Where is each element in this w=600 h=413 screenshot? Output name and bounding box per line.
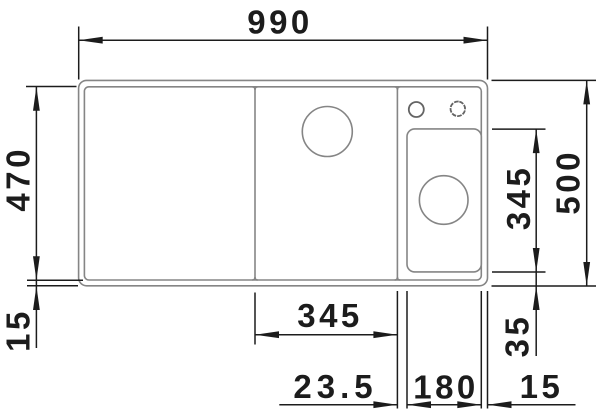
svg-text:470: 470 <box>0 146 37 212</box>
svg-text:990: 990 <box>247 4 313 41</box>
svg-text:500: 500 <box>550 149 587 215</box>
svg-text:15: 15 <box>520 368 564 405</box>
svg-text:15: 15 <box>0 308 37 352</box>
svg-text:35: 35 <box>499 314 536 358</box>
svg-text:23.5: 23.5 <box>293 368 377 405</box>
svg-text:345: 345 <box>297 297 363 334</box>
svg-text:345: 345 <box>500 165 537 231</box>
svg-text:180: 180 <box>413 369 479 406</box>
